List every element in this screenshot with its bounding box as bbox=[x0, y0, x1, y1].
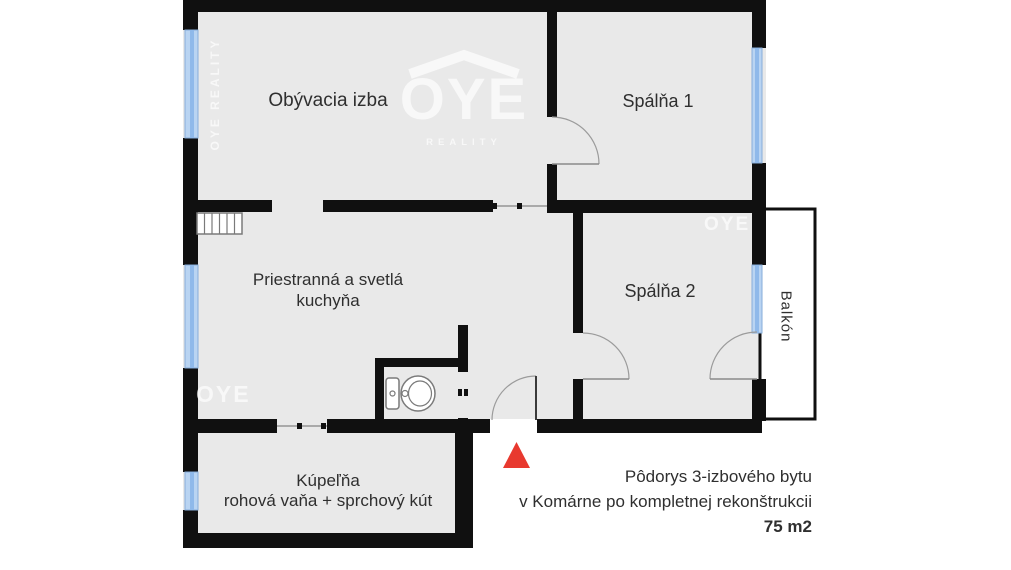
toilet-icon bbox=[386, 376, 435, 411]
wall-bathroom-right bbox=[455, 419, 473, 548]
balcony-label: Balkón bbox=[776, 272, 797, 362]
window-bedroom2-balcony bbox=[752, 265, 762, 333]
entrance-opening bbox=[490, 419, 537, 433]
wall-bedroom2-left-1 bbox=[573, 213, 583, 333]
window-kitchen bbox=[185, 265, 198, 368]
wall-right-3 bbox=[752, 213, 766, 265]
watermark-logo-subtext: REALITY bbox=[404, 137, 524, 148]
wall-living-bedroom1-1 bbox=[547, 0, 557, 117]
window-bedroom1 bbox=[752, 48, 762, 163]
kitchen-label-line2: kuchyňa bbox=[228, 290, 428, 311]
wall-wc-left bbox=[375, 358, 384, 421]
bathroom-label-line1: Kúpeľňa bbox=[208, 470, 448, 491]
floorplan-canvas: OYE REALITY OYE REALITY OYE OYE Obývacia… bbox=[0, 0, 1011, 570]
watermark-bedroom2: OYE bbox=[704, 214, 750, 236]
living-room-label: Obývacia izba bbox=[228, 90, 428, 111]
caption-area: 75 m2 bbox=[474, 514, 812, 539]
watermark-side-text: OYE REALITY bbox=[208, 34, 222, 154]
bedroom1-label: Spálňa 1 bbox=[568, 91, 748, 112]
wall-bathroom-bottom bbox=[183, 533, 473, 548]
wall-bottom-1 bbox=[183, 419, 277, 433]
wall-bottom-3 bbox=[537, 419, 762, 433]
wall-right-4 bbox=[752, 379, 766, 421]
wall-left-1 bbox=[183, 0, 198, 30]
radiator-icon bbox=[197, 213, 242, 234]
wall-wc-top bbox=[375, 358, 468, 367]
wall-right-1 bbox=[752, 12, 766, 48]
window-living bbox=[185, 30, 198, 138]
caption-line2: v Komárne po kompletnej rekonštrukcii bbox=[474, 489, 812, 514]
bedroom2-label: Spálňa 2 bbox=[570, 281, 750, 302]
wall-top bbox=[183, 0, 766, 12]
bathroom-label-line2: rohová vaňa + sprchový kút bbox=[208, 490, 448, 511]
caption-line1: Pôdorys 3-izbového bytu bbox=[474, 464, 812, 489]
caption-block: Pôdorys 3-izbového bytu v Komárne po kom… bbox=[474, 464, 812, 539]
window-bathroom bbox=[185, 472, 198, 510]
kitchen-label-line1: Priestranná a svetlá bbox=[228, 269, 428, 290]
wall-living-kitchen-1 bbox=[183, 200, 272, 212]
wall-living-kitchen-2 bbox=[323, 200, 493, 212]
wall-bedroom1-bedroom2 bbox=[547, 200, 766, 213]
watermark-kitchen: OYE bbox=[196, 381, 251, 408]
